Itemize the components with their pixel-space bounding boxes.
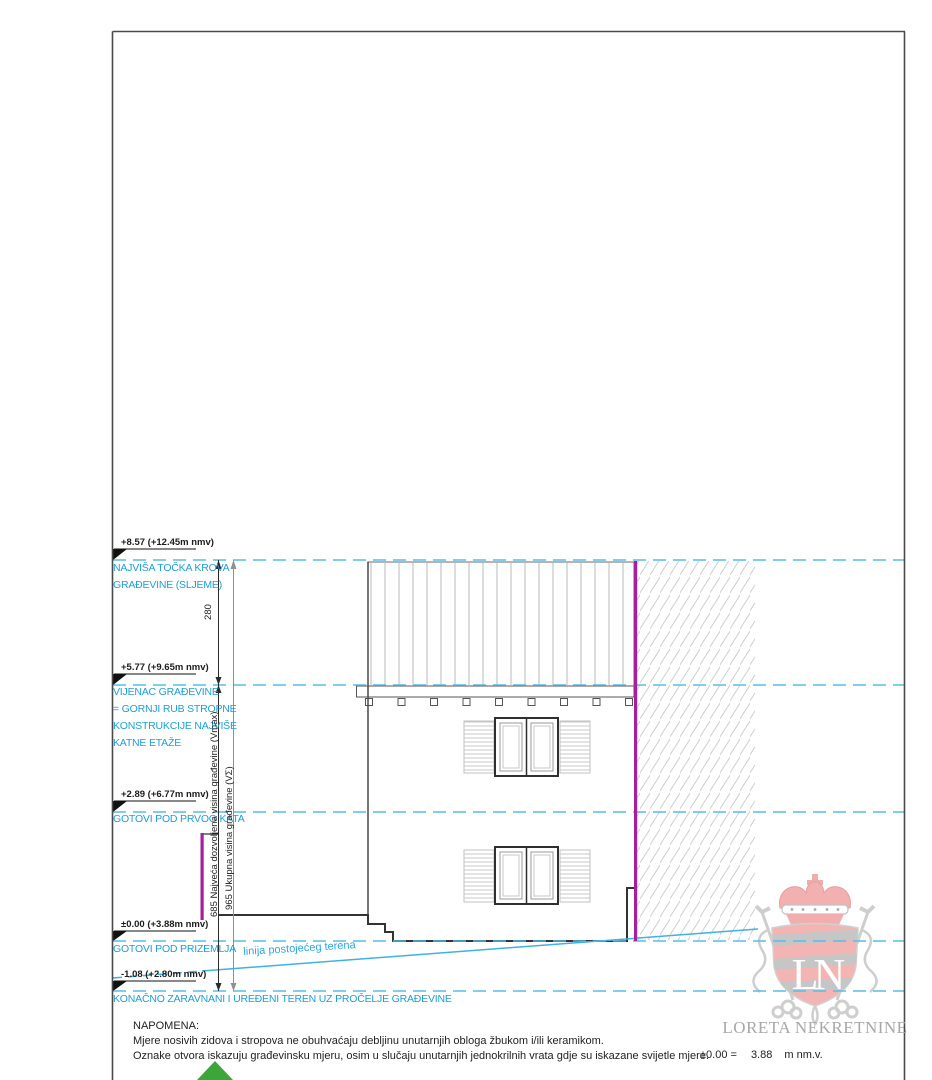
building-elevation — [219, 562, 635, 941]
lower-window — [464, 847, 590, 904]
elevation-value-prvi-kat: +2.89 (+6.77m nmv) — [121, 789, 209, 800]
elevation-value-teren: -1.08 (+2.80m nmv) — [121, 969, 206, 980]
datum-value: 3.88 — [751, 1049, 772, 1061]
shutter-right — [560, 721, 590, 773]
notes-line: Mjere nosivih zidova i stropova ne obuhv… — [133, 1034, 709, 1049]
elevation-value-sljeme: +8.57 (+12.45m nmv) — [121, 537, 214, 548]
hatched-zone — [637, 561, 755, 940]
shutter-right — [560, 850, 590, 902]
dim-max-allowed-height: 685 Najveća dozvoljena visina građevine … — [209, 689, 220, 917]
elevation-value-vijenac: +5.77 (+9.65m nmv) — [121, 662, 209, 673]
upper-window — [464, 718, 590, 776]
facade-height-mark — [201, 833, 204, 920]
dim-total-height: 965 Ukupna visina građevine (VΣ) — [224, 710, 235, 910]
elevation-drawing-sheet: LN — [0, 0, 932, 1080]
notes-line: Oznake otvora iskazuju građevinsku mjeru… — [133, 1049, 709, 1064]
level-label: VIJENAC GRAĐEVINE — [113, 686, 219, 698]
company-crest-watermark: LN — [753, 874, 876, 1024]
level-label: KONAČNO ZARAVNANI I UREĐENI TEREN UZ PRO… — [113, 993, 452, 1005]
level-label: NAJVIŠA TOČKA KROVA — [113, 562, 229, 574]
level-label: KATNE ETAŽE — [113, 737, 181, 749]
level-label: GOTOVI POD PRIZEMLJA — [113, 943, 236, 955]
building-boundary-line — [634, 561, 637, 941]
dim-roof-height: 280 — [203, 588, 214, 636]
datum-label: ±0.00 = — [700, 1049, 737, 1061]
eaves-band — [357, 686, 635, 697]
datum-unit: m nm.v. — [784, 1049, 822, 1061]
sheet-border — [113, 32, 906, 1080]
shutter-left — [464, 721, 494, 773]
company-name: LORETA NEKRETNINE — [722, 1018, 908, 1038]
datum-note: ±0.00 =3.88m nm.v. — [700, 1049, 823, 1061]
shutter-left — [464, 850, 494, 902]
notes-heading: NAPOMENA: — [133, 1019, 709, 1034]
elevation-value-prizemlje: ±0.00 (+3.88m nmv) — [121, 919, 208, 930]
rafter-tails — [366, 699, 633, 706]
crown-icon — [780, 874, 851, 927]
notes-block: NAPOMENA: Mjere nosivih zidova i stropov… — [133, 1019, 709, 1064]
